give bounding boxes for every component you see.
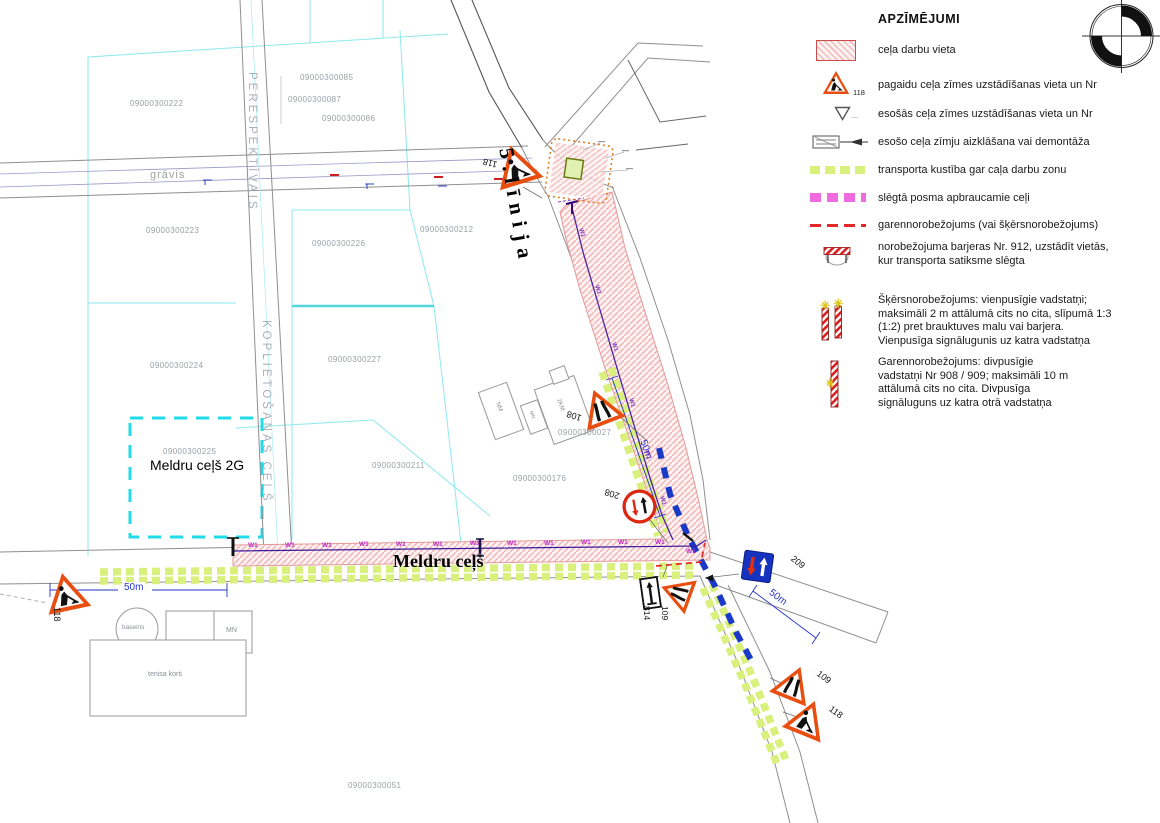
w1-label: W1 xyxy=(686,548,696,555)
w1-label: W1 xyxy=(359,541,369,548)
legend-barrier-icon xyxy=(822,243,852,267)
legend-giveway-sub: ── xyxy=(851,115,858,121)
legend-workzone-swatch xyxy=(816,40,856,61)
legend-item-text: slēgtā posma apbraucamie ceļi xyxy=(878,192,1160,206)
sign-label-109: 109 xyxy=(660,606,670,620)
parcel-number: 09000300222 xyxy=(130,99,183,108)
parcel-number: 09000300211 xyxy=(372,461,425,470)
legend-item-text: Garennorobežojums: divpusīgie vadstatņi … xyxy=(878,356,1160,410)
legend-red-dashes xyxy=(810,224,866,227)
parcel-number: 09000300212 xyxy=(420,225,473,234)
legend-roadwork-sign-icon xyxy=(822,70,850,95)
meldru-2g-highlight-box xyxy=(130,418,262,537)
site-plan-drawing xyxy=(0,0,1160,823)
legend-sign-nr: 118 xyxy=(853,88,865,97)
dimension-50m-left: 50m xyxy=(122,582,145,593)
sign-label-118-left: 118 xyxy=(52,607,62,621)
w1-label: W1 xyxy=(248,542,258,549)
legend-item-text: ceļa darbu vieta xyxy=(878,44,1160,58)
legend-giveway-icon xyxy=(834,106,851,121)
sign-118-left xyxy=(41,569,92,615)
parcel-number: 09000300085 xyxy=(300,73,353,82)
legend-magenta-dashes xyxy=(810,193,866,202)
traffic-management-plan: 09000300222 09000300085 09000300087 0900… xyxy=(0,0,1160,823)
w1-label: W1 xyxy=(396,541,406,548)
w1-label: W1 xyxy=(433,541,443,548)
w1-label: W1 xyxy=(507,540,517,547)
legend-cross-posts-icon xyxy=(818,298,848,344)
parcel-number: 09000300087 xyxy=(288,95,341,104)
area-name-meldru-2g: Meldru ceļš 2G xyxy=(150,457,244,473)
legend-title: APZĪMĒJUMI xyxy=(878,12,960,26)
legend-sign-cover-icon xyxy=(812,134,872,150)
legend-item-text: norobežojuma barjeras Nr. 912, uzstādīt … xyxy=(878,241,1160,268)
legend-item-text: esošo ceļa zīmju aizklāšana vai demontāž… xyxy=(878,136,1160,150)
parcel-boundaries xyxy=(88,0,490,556)
dimension-lines xyxy=(50,376,820,644)
building-label-tennis: tenisa korti xyxy=(148,671,182,678)
legend-item-text: transporta kustība gar caļa darbu zonu xyxy=(878,164,1160,178)
parcel-number: 09000300176 xyxy=(513,474,566,483)
parcel-number: 09000300227 xyxy=(328,355,381,364)
parcel-number: 09000300224 xyxy=(150,361,203,370)
sign-814 xyxy=(640,577,661,609)
building-label-mn: MN xyxy=(226,627,237,634)
legend-item-text: pagaidu ceļa zīmes uzstādīšanas vieta un… xyxy=(878,79,1160,93)
w1-label: W1 xyxy=(322,542,332,549)
connection-detail xyxy=(544,138,633,204)
road-label-perspektivais: PERESPEKTĪVAIS xyxy=(246,72,258,212)
w1-label: W1 xyxy=(655,539,665,546)
sign-209 xyxy=(741,550,774,583)
road-label-meldru: Meldru ceļš xyxy=(393,551,483,572)
legend-green-dashes xyxy=(810,166,866,174)
parcel-number: 09000300223 xyxy=(146,226,199,235)
sign-109-bottom xyxy=(769,659,819,706)
compass-rose-icon xyxy=(1082,0,1160,74)
parcel-number: 09000300225 xyxy=(163,447,216,456)
legend-item-text: Šķērsnorobežojums: vienpusīgie vadstatņi… xyxy=(878,294,1160,348)
w1-label: W1 xyxy=(544,540,554,547)
parcel-number: 09000300027 xyxy=(558,428,611,437)
building-label-pool: baseins xyxy=(122,624,144,631)
legend-long-post-icon xyxy=(826,358,842,410)
parcel-number: 09000300051 xyxy=(348,781,401,790)
w1-label: W1 xyxy=(618,539,628,546)
w1-label: W1 xyxy=(470,540,480,547)
parcel-number: 09000300086 xyxy=(322,114,375,123)
sign-label-814: 814 xyxy=(642,606,652,620)
legend-item-text: esošās ceļa zīmes uzstādīšanas vieta un … xyxy=(878,108,1160,122)
w1-label: W1 xyxy=(581,539,591,546)
parcel-number: 09000300226 xyxy=(312,239,365,248)
road-label-koplietosanas: KOPLIETOŠANAS CEĻŠ xyxy=(260,320,272,504)
sign-118-bottom xyxy=(782,693,834,742)
w1-label: W1 xyxy=(285,542,295,549)
legend-item-text: garennorobežojums (vai šķērsnorobežojums… xyxy=(878,219,1160,233)
ditch-label: grāvis xyxy=(150,169,185,181)
